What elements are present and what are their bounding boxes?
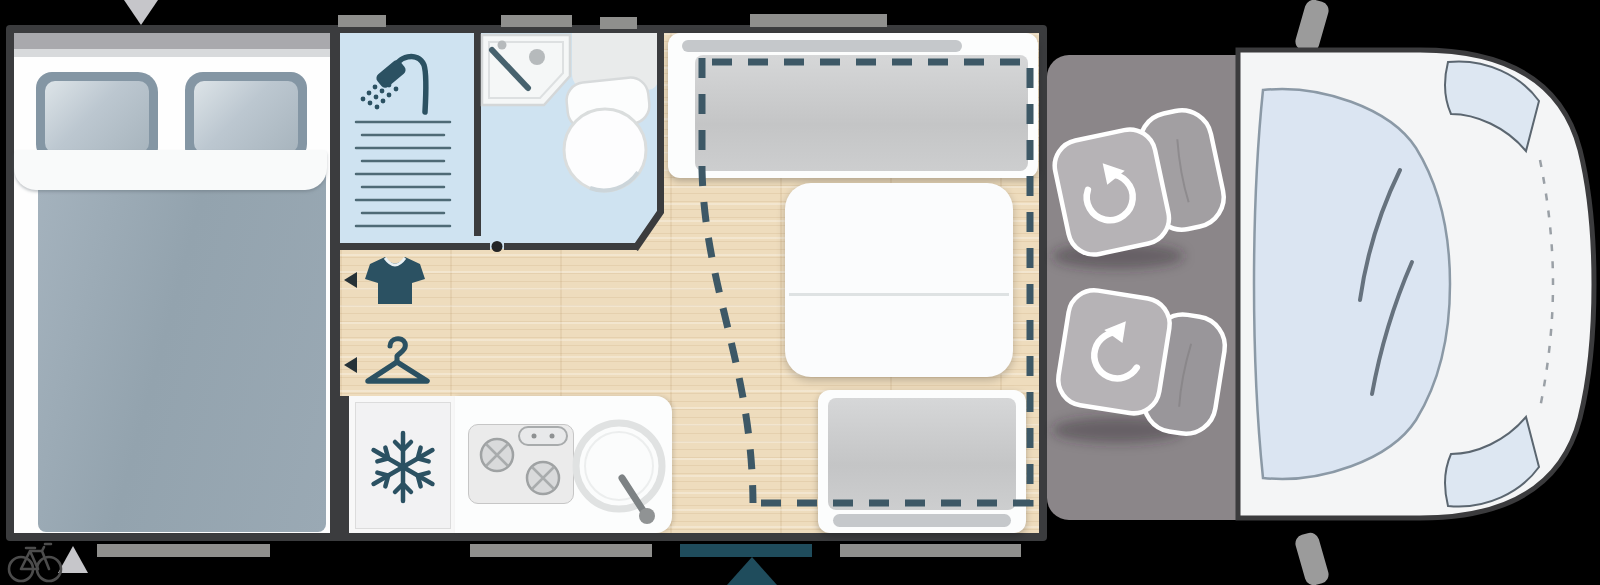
kitchen-sink: [576, 423, 662, 524]
hanger-icon: [368, 339, 427, 381]
toilet: [564, 76, 651, 191]
stove-burners: [481, 427, 567, 494]
shower-icon: [361, 57, 426, 112]
shower-drain-grate: [356, 122, 450, 226]
bathroom-door-pivot-dot: [492, 241, 503, 252]
t-shirt-icon: [365, 257, 425, 304]
floorplan-canvas: [0, 0, 1600, 585]
side-mirror-lower: [1293, 531, 1330, 585]
drop-down-bed-outline: [702, 58, 1030, 503]
swivel-seat-lower: [1053, 287, 1231, 438]
bike-icon: [9, 544, 61, 581]
snowflake-icon: [370, 433, 437, 501]
van-front: [1238, 0, 1594, 585]
seat-upper-cushion: [1050, 125, 1174, 260]
washbasin: [482, 35, 570, 105]
side-mirror-upper: [1293, 0, 1330, 54]
swivel-seat-upper: [1048, 105, 1230, 260]
seat-lower-cushion: [1055, 287, 1174, 418]
fixtures-overlay: [0, 0, 1600, 585]
arrow-left-marker-shirt: [344, 272, 357, 288]
arrow-left-marker-hanger: [344, 357, 357, 373]
